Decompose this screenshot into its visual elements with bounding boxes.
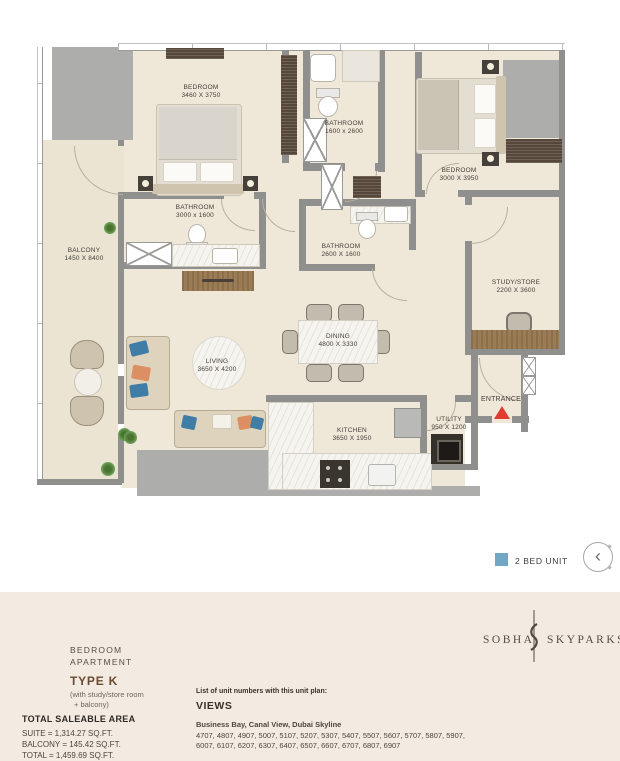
footer-panel: 2 BEDROOM APARTMENT TYPE K (with study/s… xyxy=(0,592,620,761)
kitchen-counter xyxy=(282,453,432,490)
dining-chair xyxy=(338,364,364,382)
room-label-bathroom-3: BATHROOM2600 X 1600 xyxy=(321,243,360,259)
plant xyxy=(124,431,137,444)
lounge-chair xyxy=(70,340,104,369)
floor-plan: BEDROOM3460 X 3750 BATHROOM1600 x 2600 B… xyxy=(0,0,620,590)
bed-blanket xyxy=(159,107,237,160)
wall xyxy=(465,349,565,355)
bed-pillow xyxy=(474,118,496,148)
type-label: TYPE K xyxy=(70,674,118,688)
lamp xyxy=(247,180,254,187)
bed-pillow xyxy=(200,162,234,182)
sink xyxy=(212,248,238,264)
plant xyxy=(101,462,115,476)
bed-headboard xyxy=(152,184,244,194)
door-frame xyxy=(522,357,536,376)
shower xyxy=(126,242,172,266)
wall xyxy=(455,395,478,402)
area-balcony: BALCONY = 145.42 SQ.FT. xyxy=(22,740,121,749)
units-heading: List of unit numbers with this unit plan… xyxy=(196,688,327,695)
room-label-kitchen: KITCHEN3650 X 1950 xyxy=(332,427,371,443)
area-heading: TOTAL SALEABLE AREA xyxy=(22,714,135,724)
wall xyxy=(471,355,478,470)
brand-name-right: SKYPARKS xyxy=(547,634,620,646)
void-top-left xyxy=(52,47,133,140)
lounge-chair xyxy=(70,396,104,426)
floor-plan-page: BEDROOM3460 X 3750 BATHROOM1600 x 2600 B… xyxy=(0,0,620,761)
tv-console xyxy=(166,48,224,59)
views-heading: VIEWS xyxy=(196,700,232,712)
void-top-right xyxy=(503,60,561,138)
units-line1: 4707, 4807, 4907, 5007, 5107, 5207, 5307… xyxy=(196,731,465,740)
wardrobe xyxy=(281,55,297,155)
fridge xyxy=(394,408,422,438)
wardrobe xyxy=(506,139,562,163)
bed-pillow xyxy=(163,162,197,182)
lamp xyxy=(487,63,494,70)
washer-door xyxy=(437,440,461,462)
shower xyxy=(342,50,380,82)
wall xyxy=(299,199,306,271)
wall xyxy=(559,50,565,355)
sink xyxy=(310,54,336,82)
wall xyxy=(266,395,425,402)
terrace-block xyxy=(137,450,273,488)
unit-type-line2: APARTMENT xyxy=(70,657,132,667)
kitchen-sink xyxy=(368,464,396,486)
compass-tick xyxy=(607,565,611,569)
wall xyxy=(299,199,416,206)
legend-label: 2 BED UNIT xyxy=(515,556,568,566)
unit-type-line1: BEDROOM xyxy=(70,645,122,655)
closet xyxy=(303,118,327,162)
compass-tick xyxy=(607,544,611,548)
room-label-bathroom-2: BATHROOM3000 x 1600 xyxy=(176,204,215,220)
room-label-bedroom-1: BEDROOM3460 X 3750 xyxy=(181,84,220,100)
window-gap xyxy=(118,364,124,376)
units-line2: 6007, 6107, 6207, 6307, 6407, 6507, 6607… xyxy=(196,741,400,750)
cushion-blue xyxy=(129,383,149,398)
room-label-dining: DINING4800 X 3330 xyxy=(318,333,357,349)
door-frame xyxy=(522,376,536,395)
entrance-marker xyxy=(494,406,510,419)
dining-chair xyxy=(306,364,332,382)
type-note-line2: + balcony) xyxy=(74,700,109,709)
room-label-study: STUDY/STORE2200 X 3600 xyxy=(492,279,540,295)
wall xyxy=(37,479,122,485)
room-label-bathroom-1: BATHROOM1600 x 2600 xyxy=(325,120,364,136)
balcony-table xyxy=(74,368,102,396)
cushion-blue xyxy=(181,415,197,431)
sink xyxy=(384,206,408,222)
room-label-balcony: BALCONY1450 X 8400 xyxy=(64,247,103,263)
stove xyxy=(320,460,350,488)
cushion-white xyxy=(212,414,232,429)
room-label-bedroom-2: BEDROOM3000 X 3950 xyxy=(439,167,478,183)
brand-logo-icon xyxy=(527,610,541,662)
desk xyxy=(471,330,559,349)
plant xyxy=(104,222,116,234)
lamp xyxy=(142,180,149,187)
area-total: TOTAL = 1,459.69 SQ.FT. xyxy=(22,751,114,760)
door-gap xyxy=(345,163,375,171)
console-handle xyxy=(202,279,234,282)
legend-swatch xyxy=(495,553,508,566)
wall xyxy=(299,264,375,271)
closet xyxy=(321,164,343,210)
bed-headboard xyxy=(496,76,506,154)
cushion-orange xyxy=(131,365,151,382)
toilet-bowl xyxy=(318,96,338,117)
room-label-living: LIVING3650 X 4200 xyxy=(197,358,236,374)
area-suite: SUITE = 1,314.27 SQ.FT. xyxy=(22,729,113,738)
type-note-line1: (with study/store room xyxy=(70,690,144,699)
bed-pillow xyxy=(474,84,496,114)
stove-burner xyxy=(326,466,330,470)
views-text: Business Bay, Canal View, Dubai Skyline xyxy=(196,720,341,729)
lamp xyxy=(487,155,494,162)
entrance-label: ENTRANCE xyxy=(481,396,521,405)
window-strip-left xyxy=(37,47,43,484)
toilet-bowl xyxy=(358,219,376,239)
bed-blanket xyxy=(418,80,459,150)
wardrobe xyxy=(353,176,381,198)
room-label-utility: UTILITY950 X 1200 xyxy=(431,416,466,432)
dining-chair xyxy=(282,330,298,354)
